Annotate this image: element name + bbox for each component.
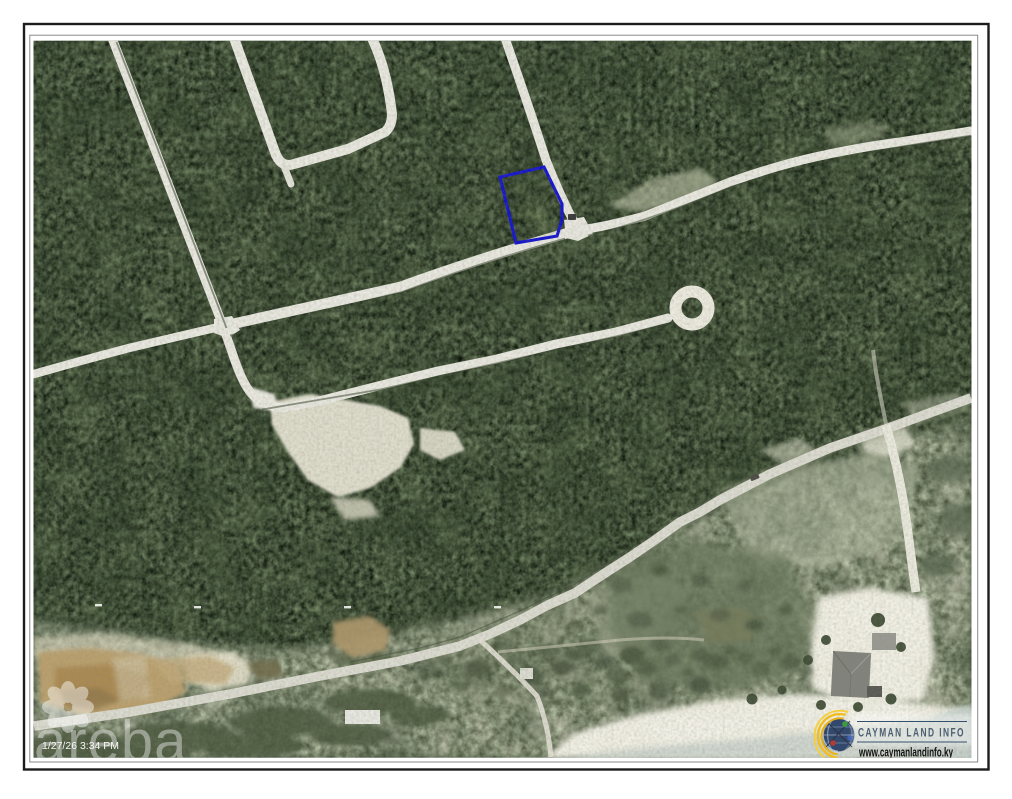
svg-text:1/27/26 3:34 PM: 1/27/26 3:34 PM [42, 740, 119, 752]
svg-text:www.caymanlandinfo.ky: www.caymanlandinfo.ky [858, 745, 953, 760]
svg-text:CAYMAN LAND INFO: CAYMAN LAND INFO [858, 728, 965, 740]
